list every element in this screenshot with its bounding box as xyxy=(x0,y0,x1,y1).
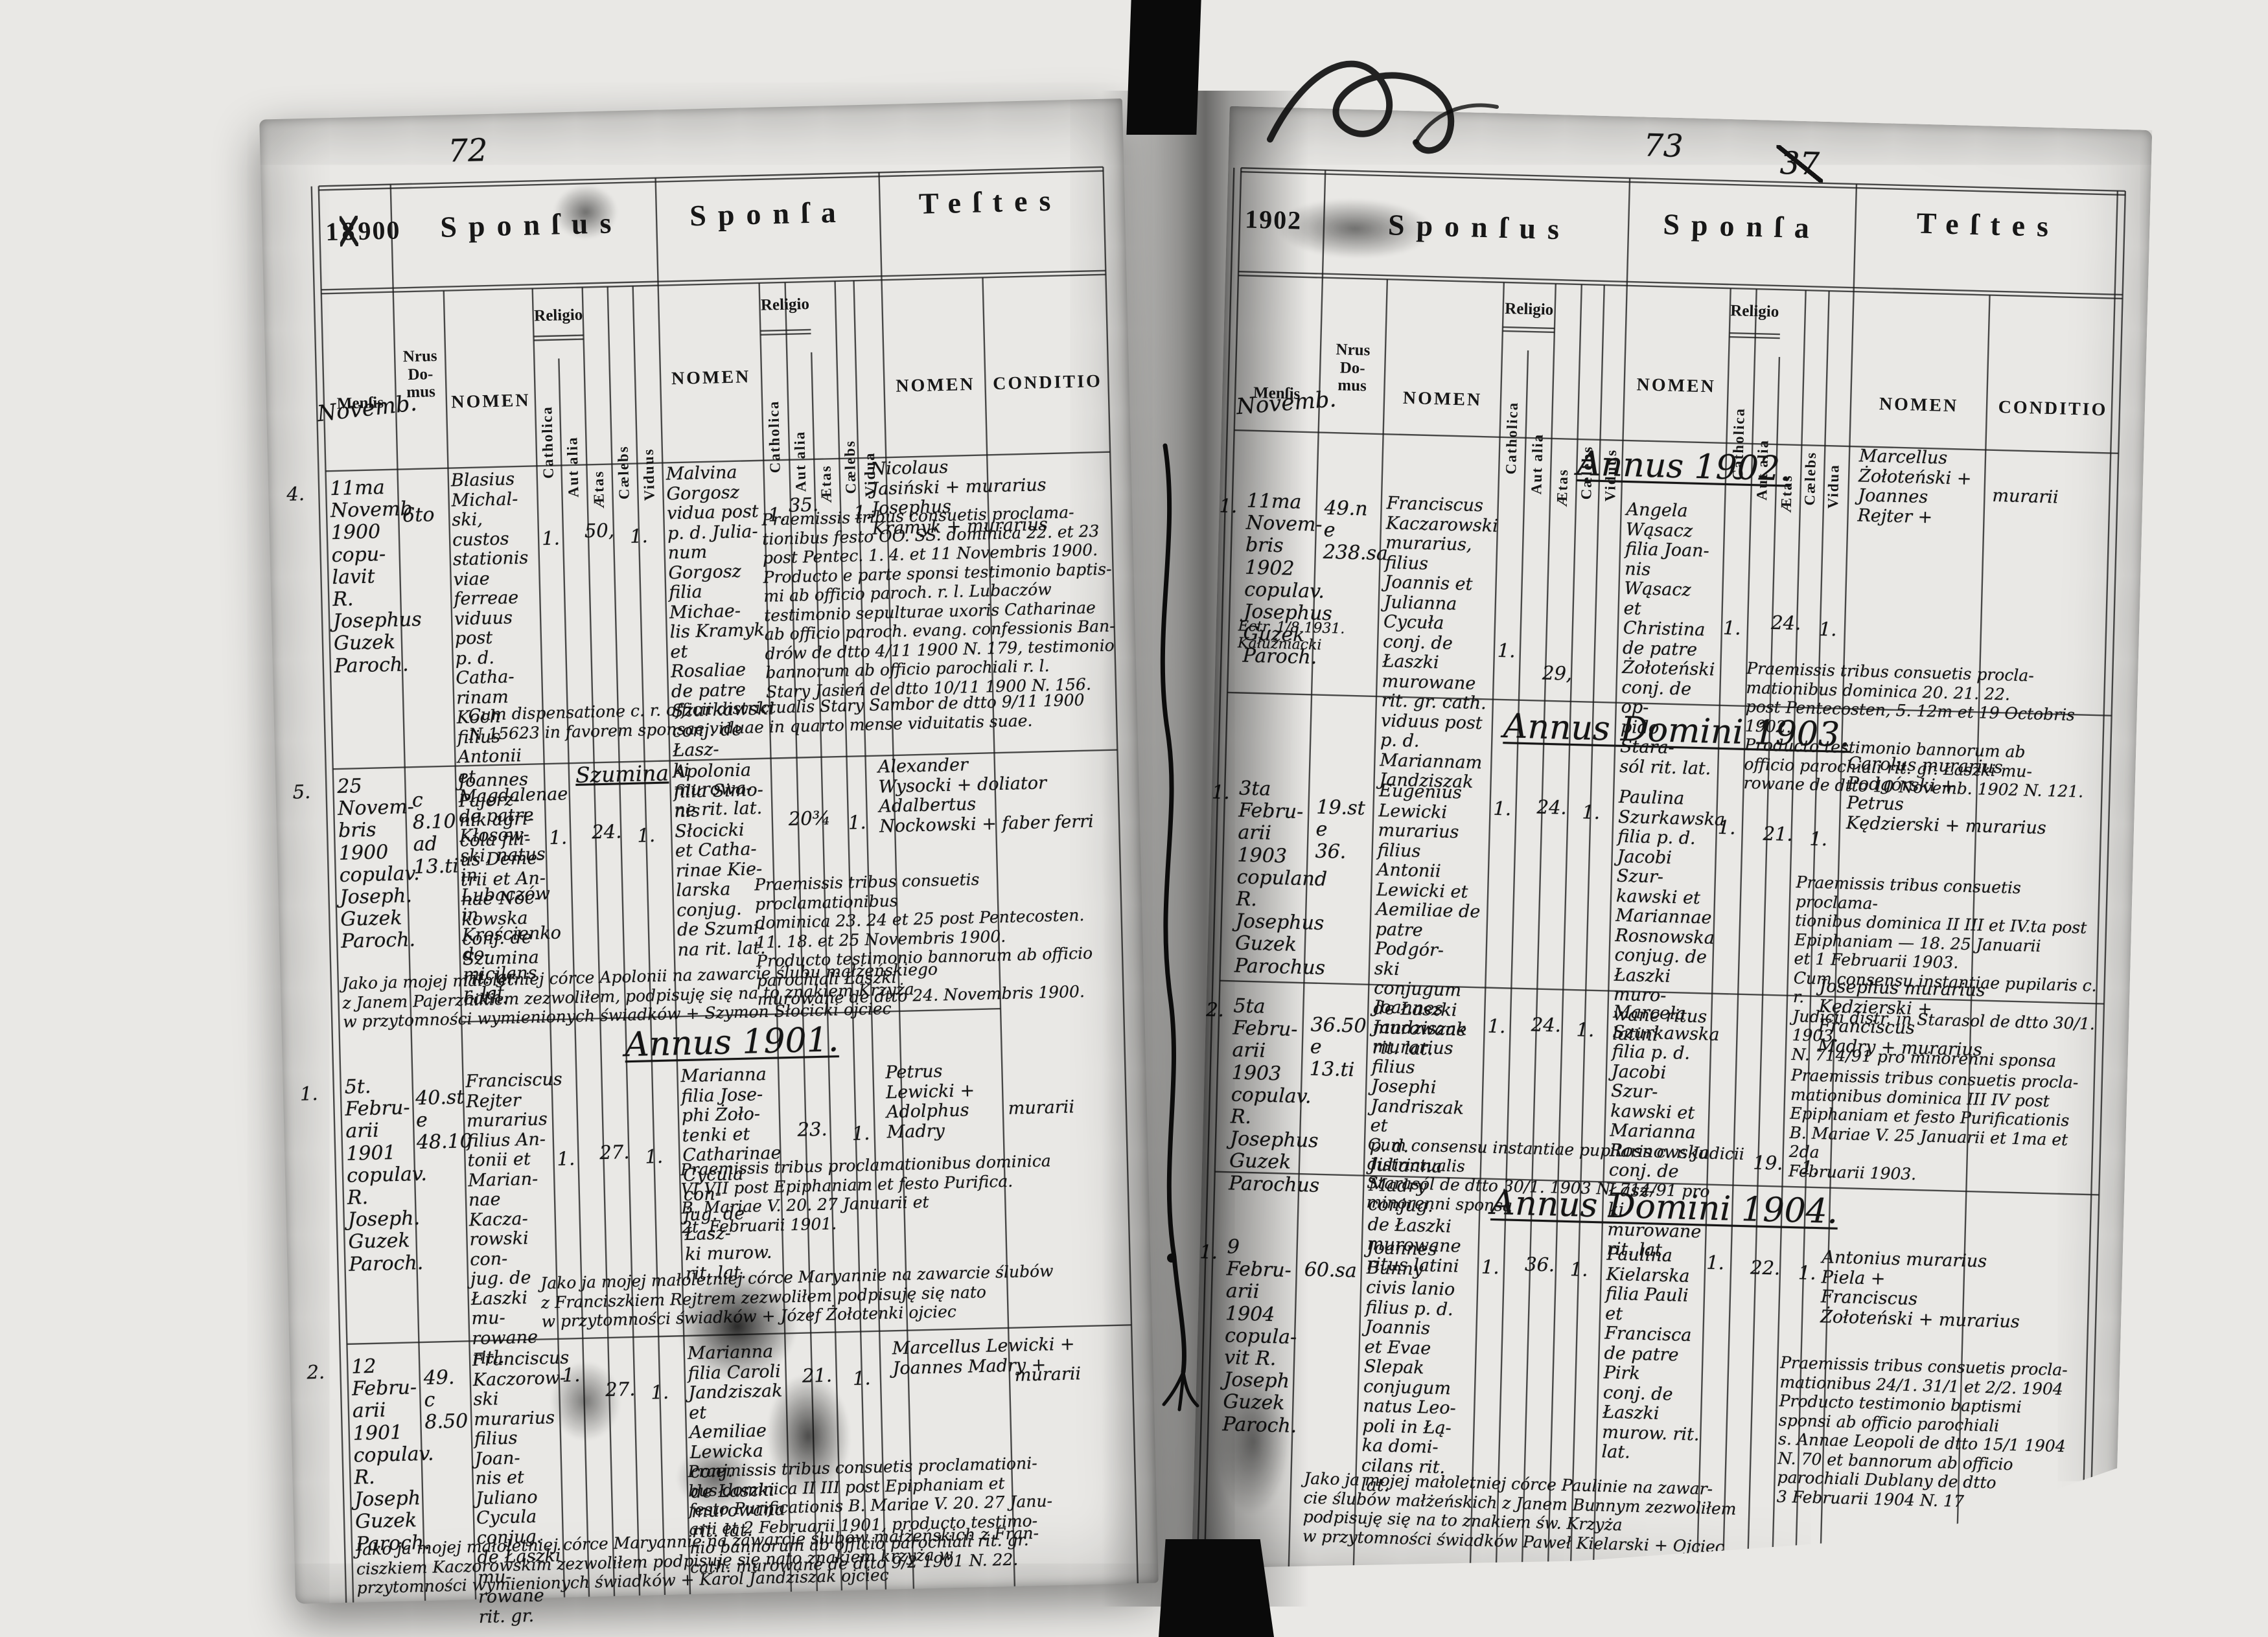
house-number: 60.sa xyxy=(1304,1259,1359,1282)
sponsa-age: 20¾ xyxy=(788,807,831,830)
place-heading: Szumina xyxy=(561,760,684,788)
sponsus-name: Franciscus Kaczarowski murarius, filius … xyxy=(1379,494,1497,793)
sponsa-religio-mark: 1. xyxy=(1723,617,1742,639)
year-label: 18900 xyxy=(325,214,401,247)
column-header-aetas-sponsa: Ætas xyxy=(815,370,835,503)
sponsus-status-mark: 1. xyxy=(637,824,655,847)
record-number: 2. xyxy=(1206,998,1225,1021)
register-page-left: 72 18900 Sponſus Sponſa Teſtes Menſis Nr… xyxy=(259,98,1159,1604)
sponsus-status-mark: 1. xyxy=(630,525,648,547)
sponsus-status-mark: 1. xyxy=(645,1145,663,1168)
column-header-viduus: Viduus xyxy=(638,368,658,501)
folio-number-struck: 37 xyxy=(1776,145,1824,183)
record-number: 1. xyxy=(300,1082,318,1105)
binding-strip-top xyxy=(1126,0,1201,135)
sponsus-religio-mark: 1. xyxy=(549,826,567,849)
sponsus-age: 24. xyxy=(592,820,622,843)
sponsus-age: 36. xyxy=(1525,1253,1555,1276)
column-header-testes: Teſtes xyxy=(883,182,1098,222)
column-header-nomen-sponsus: NOMEN xyxy=(448,390,535,413)
sponsus-religio-mark: 1. xyxy=(1481,1256,1500,1279)
record-number: 4. xyxy=(286,483,305,505)
witnesses-names: Alexander Wysocki + doliator Adalbertus … xyxy=(878,752,1118,837)
column-header-nomen-sponsa: NOMEN xyxy=(662,367,760,390)
column-header-aut-alia-sponsus: Aut alia xyxy=(562,365,583,498)
sponsa-age: 22. xyxy=(1750,1256,1781,1279)
column-header-aut-alia-sponsa: Aut alia xyxy=(789,359,809,492)
sponsus-age: 27. xyxy=(599,1141,630,1163)
sponsa-status-mark: 1. xyxy=(851,1122,870,1145)
column-header-sponsus: Sponſus xyxy=(1343,206,1615,247)
column-header-religio-sponsa: Religio xyxy=(755,295,815,315)
sponsa-religio-mark: 1. xyxy=(1706,1252,1725,1274)
folio-number: 72 xyxy=(448,132,488,169)
sponsa-age: 21. xyxy=(1763,823,1793,845)
sponsus-name: Joannes Bunny civis lanio filius p. d. J… xyxy=(1361,1239,1477,1498)
column-header-conditio: CONDITIO xyxy=(986,371,1109,395)
year-struck-digit: 8 xyxy=(340,216,358,247)
record-number: 1. xyxy=(1199,1241,1218,1263)
record-number: 2. xyxy=(307,1361,325,1384)
year-digit: 1 xyxy=(325,217,340,247)
sponsus-status-mark: 1. xyxy=(1576,1018,1595,1041)
sponsa-status-mark: 1. xyxy=(853,1367,871,1390)
house-number: 49. c 8.50 xyxy=(423,1366,466,1434)
sponsus-religio-mark: 1. xyxy=(542,527,560,549)
sponsus-status-mark: 1. xyxy=(1570,1258,1589,1281)
house-number: 40.st e 48.10 xyxy=(415,1086,462,1154)
sponsus-status-mark: 1. xyxy=(1582,801,1601,823)
year-label: 1902 xyxy=(1245,203,1302,235)
mensis-date: 12 Febru- arii 1901 copulav. R. Joseph G… xyxy=(351,1355,422,1555)
mensis-date: 11ma Novemb 1900 copu- lavit R. Josephus… xyxy=(330,477,400,678)
sponsa-name: Paulina Kielarska filia Pauli et Francis… xyxy=(1601,1245,1709,1465)
house-number: c 8.10 ad 13.ti xyxy=(412,789,453,878)
mensis-date: 9 Febru- arii 1904 copula- vit R. Joseph… xyxy=(1222,1236,1296,1437)
column-header-caelebs-sponsa: Cælebs xyxy=(840,361,860,494)
record-note-latin: Praemissis tribus proclamationibus domin… xyxy=(680,1150,1100,1237)
witnesses-names: Carolus murarius Podgórski + Petrus Kędz… xyxy=(1846,754,2107,840)
house-number: 49.n e 238.sa xyxy=(1323,498,1379,566)
column-header-conditio: CONDITIO xyxy=(1988,397,2118,421)
sponsa-status-mark: 1. xyxy=(1819,618,1838,641)
mensis-date: 3ta Febru- arii 1903 copuland R. Josephu… xyxy=(1234,777,1308,978)
column-header-catholica-sponsus: Catholica xyxy=(537,346,557,479)
sponsus-religio-mark: 1. xyxy=(562,1364,580,1386)
sponsus-age: 24. xyxy=(1531,1013,1561,1036)
sponsus-religio-mark: 1. xyxy=(557,1147,575,1170)
record-number: 1. xyxy=(1212,781,1231,803)
sponsa-age: 23. xyxy=(797,1118,827,1141)
column-header-religio-sponsus: Religio xyxy=(528,306,588,325)
register-page-right: 73 37 1902 Sponſus Sponſa Teſtes Menſis … xyxy=(1192,106,2153,1593)
sponsus-age: 24. xyxy=(1536,796,1567,819)
sponsa-age: 21. xyxy=(802,1364,832,1387)
sponsus-religio-mark: 1. xyxy=(1487,1015,1506,1038)
sponsus-age: 50, xyxy=(584,519,614,542)
column-header-sponsa: Sponſa xyxy=(1638,206,1846,246)
column-header-sponsa: Sponſa xyxy=(664,194,872,234)
column-header-aetas-sponsus: Ætas xyxy=(588,376,608,509)
sponsa-age: 24. xyxy=(1771,612,1801,634)
record-number: 1. xyxy=(1219,495,1238,518)
column-header-nomen-testes: NOMEN xyxy=(885,374,986,397)
witness-condition: murarii xyxy=(1015,1364,1126,1386)
column-header-testes: Teſtes xyxy=(1865,204,2112,245)
column-header-nomen-testes: NOMEN xyxy=(1852,393,1986,417)
mensis-date: 5t. Febru- arii 1901 copulav. R. Joseph.… xyxy=(344,1075,415,1276)
house-number: 19.st e 36. xyxy=(1315,797,1371,865)
binding-strip-bottom xyxy=(1159,1539,1274,1637)
year-digits: 900 xyxy=(358,215,401,246)
sponsa-religio-mark: 1. xyxy=(1717,816,1736,839)
record-number: 5. xyxy=(292,781,310,803)
column-header-nomen-sponsus: NOMEN xyxy=(1385,387,1500,411)
witness-condition: murarii xyxy=(1992,487,2109,509)
house-number: 6to xyxy=(402,504,446,527)
house-number: 36.50 e 13.ti xyxy=(1309,1014,1365,1082)
sponsa-status-mark: 1. xyxy=(848,811,866,834)
sponsus-age: 29, xyxy=(1542,662,1573,685)
extract-margin-note: Ectr. 1/8 1931. Kałużniacki xyxy=(1238,618,1348,655)
sponsa-status-mark: 1. xyxy=(1809,828,1828,851)
mensis-date: 25 Novem- bris 1900 copulav. Joseph. Guz… xyxy=(337,774,408,953)
column-header-caelebs-sponsus: Cælebs xyxy=(613,367,633,500)
column-header-aetas-sponsa: Ætas xyxy=(1778,380,1798,513)
witness-condition: murarii xyxy=(1008,1097,1118,1119)
column-header-religio-sponsa: Religio xyxy=(1724,302,1785,321)
sponsus-status-mark: 1. xyxy=(651,1381,669,1404)
column-header-nomen-sponsa: NOMEN xyxy=(1626,374,1726,398)
mensis-date: 5ta Febru- arii 1903 copulav. R. Josephu… xyxy=(1229,995,1302,1196)
witnesses-names: Antonius murarius Piela + Franciscus Żoł… xyxy=(1820,1248,2089,1334)
record-note-latin: Praemissis tribus consuetis procla- mati… xyxy=(1788,1066,2099,1188)
column-header-catholica-sponsa: Catholica xyxy=(764,340,784,474)
folio-number: 73 xyxy=(1643,127,1684,165)
column-header-aetas-sponsus: Ætas xyxy=(1554,374,1574,507)
sponsa-status-mark: 1. xyxy=(1798,1261,1817,1284)
scanned-register-spread: 72 18900 Sponſus Sponſa Teſtes Menſis Nr… xyxy=(0,0,2268,1637)
record-note-latin: Praemissis tribus consuetis proclama- ti… xyxy=(761,502,1119,702)
column-header-sponsus: Sponſus xyxy=(415,205,649,245)
witnesses-names: Josephus murarius Kędzierski + Franciscu… xyxy=(1818,977,2092,1063)
sponsus-religio-mark: 1. xyxy=(1498,639,1516,662)
sponsus-age: 27. xyxy=(605,1378,636,1401)
column-header-religio-sponsus: Religio xyxy=(1499,300,1559,319)
sponsus-religio-mark: 1. xyxy=(1493,797,1512,820)
